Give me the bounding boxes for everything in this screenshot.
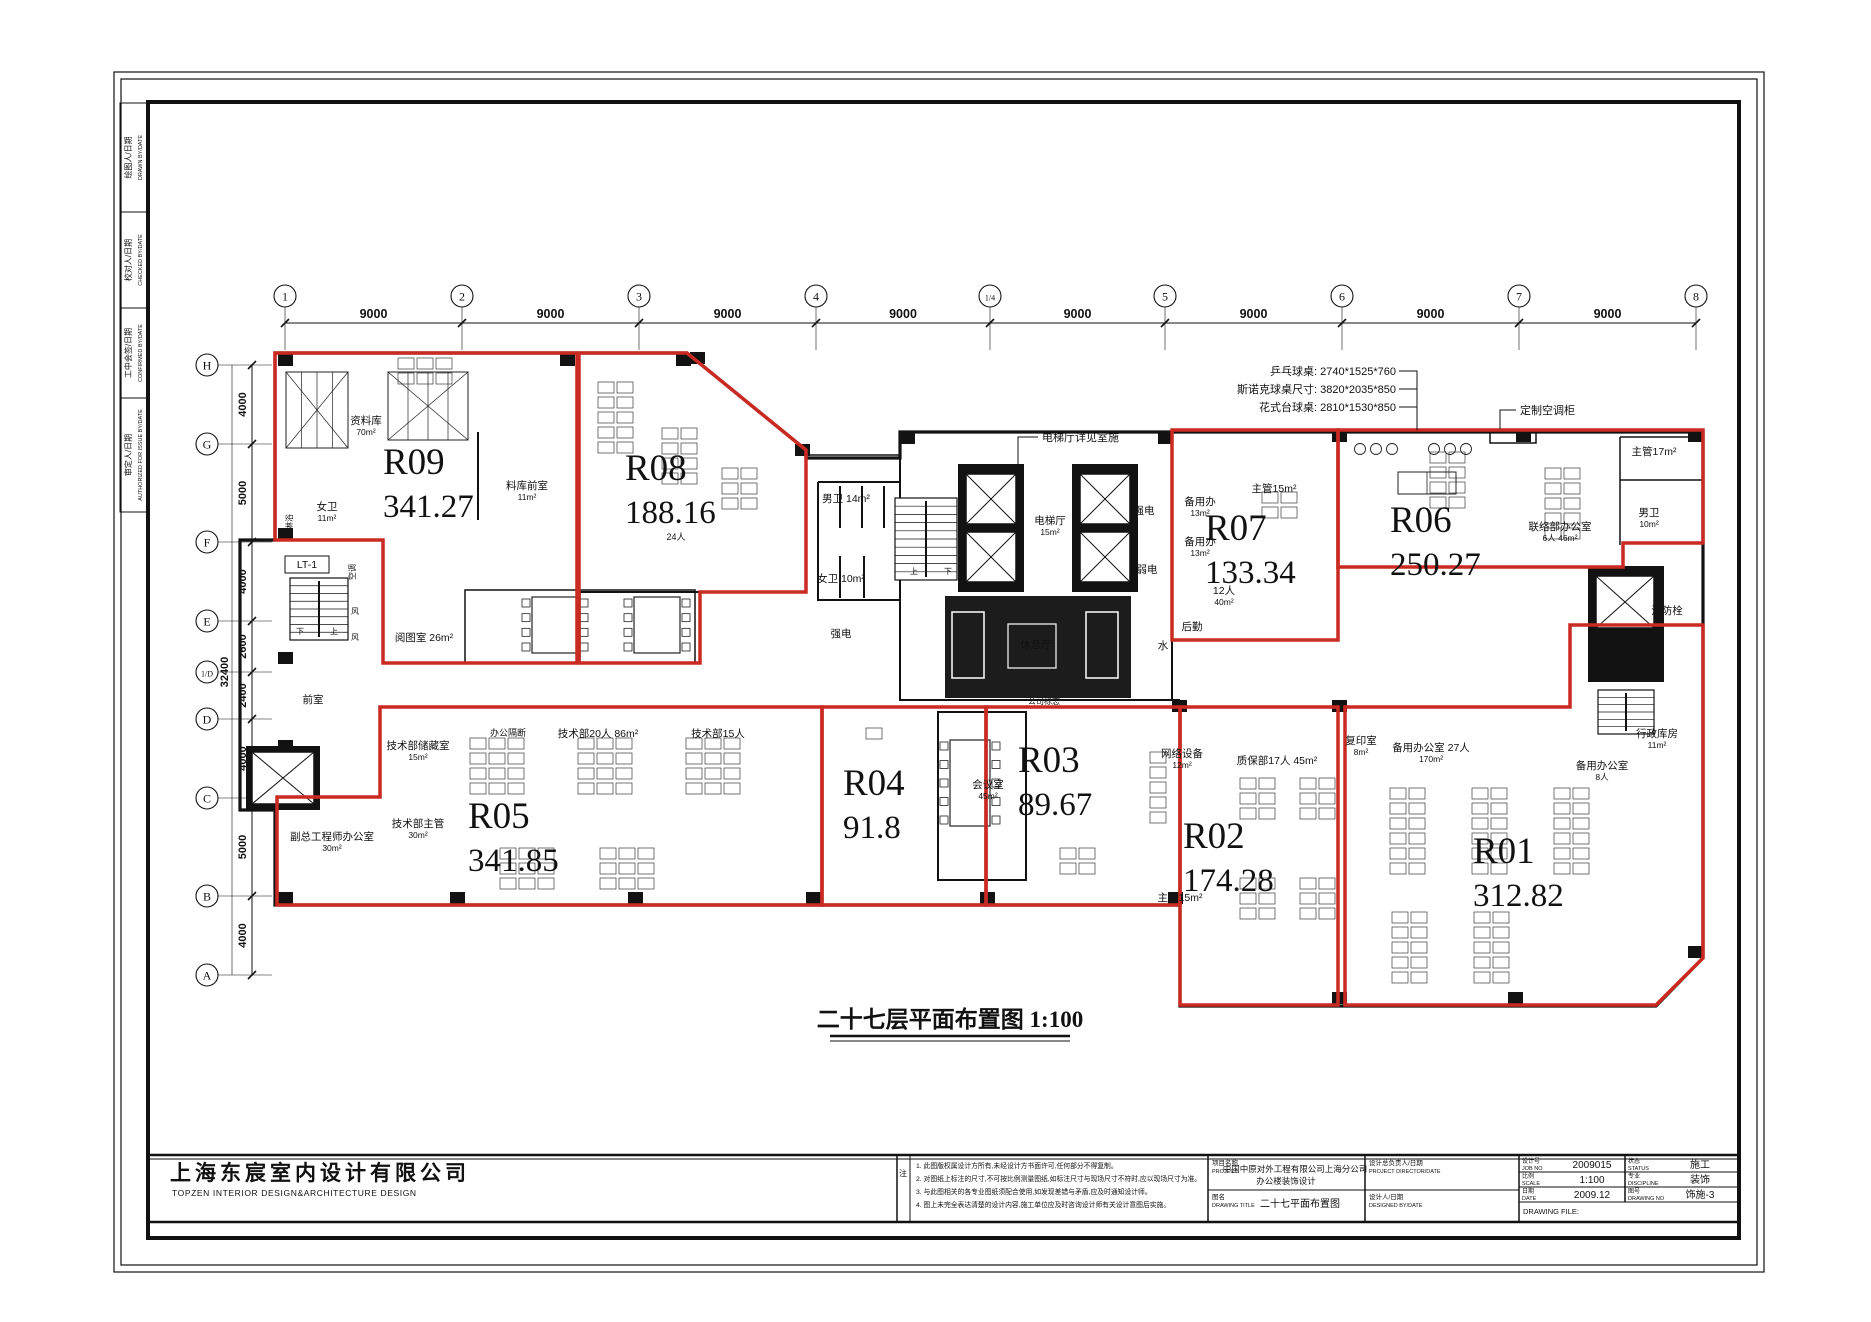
desk [436,373,452,384]
room-area: 30m² [322,843,342,853]
column [1688,430,1703,442]
grid-row-label: F [204,536,211,550]
grid-col-span: 9000 [1240,307,1268,321]
room-label: 料库前室 [506,479,548,492]
desk [470,768,486,779]
desk [1300,793,1316,804]
room-label: 强电 [1134,504,1156,517]
room-area: 11m² [518,492,537,502]
desk [1573,818,1589,829]
desk [638,848,654,859]
desk [619,863,635,874]
floorplan-canvas: 绘图人/日期DRAWN BY/DATE校对人/日期CHECKED BY/DATE… [0,0,1871,1322]
note-line: 4. 图上未完全表达清楚的设计内容,施工单位应及时咨询设计师有关设计意图后实施。 [916,1200,1170,1209]
column [450,892,465,904]
desk [1472,818,1488,829]
desk [578,783,594,794]
desk [1474,972,1490,983]
grid-col-span: 9000 [714,307,742,321]
desk [1390,848,1406,859]
desk [1493,972,1509,983]
desk [1259,808,1275,819]
column [628,892,643,904]
desk [722,483,738,494]
desk [686,783,702,794]
room-label: 备用办公室 27人 [1392,741,1470,754]
company-name-en: TOPZEN INTERIOR DESIGN&ARCHITECTURE DESI… [172,1188,417,1198]
grid-col-span: 9000 [1064,307,1092,321]
margin-label-cn: 校对人/日期 [123,239,133,281]
desk [598,397,614,408]
room-label: 技术部储藏室 [387,739,450,752]
callout-text: 花式台球桌: 2810*1530*850 [1259,400,1396,414]
desk [417,358,433,369]
desk [741,498,757,509]
desk [1411,942,1427,953]
designer-label: 设计人/日期 [1369,1192,1404,1201]
grid-row-total: 32400 [219,657,231,688]
zone-area-R05: 341.85 [468,843,559,879]
desk [1259,793,1275,804]
furniture-layer [286,358,1589,983]
zone-area-R01: 312.82 [1473,878,1564,914]
date-label-en: DATE [1522,1196,1537,1202]
chair [624,614,632,622]
desk [500,878,516,889]
desk [662,428,678,439]
grid-row-label: E [203,615,210,629]
desk [1300,878,1316,889]
room-label: 风 [351,607,359,616]
desk [598,442,614,453]
lounge-sofa [1086,612,1118,678]
chair [580,628,588,636]
desk [489,753,505,764]
column [278,740,293,752]
grid-col-label: 7 [1516,290,1522,304]
desk [1474,957,1490,968]
stool [1445,444,1456,455]
desk [681,428,697,439]
desk [722,498,738,509]
drawing-title-label-en: DRAWING TITLE [1212,1203,1255,1209]
room-label: 空调 [347,564,357,580]
column [900,432,915,444]
desk [1474,942,1490,953]
desk [398,358,414,369]
room-area: 30m² [408,830,428,840]
zone-id-R05: R05 [468,796,530,837]
note-line: 2. 对图纸上标注的尺寸,不可按比例测量图纸,如标注尺寸与现场尺寸不符时,应以现… [916,1174,1201,1183]
chair [940,742,948,750]
director-label: 设计总负责人/日期 [1369,1158,1423,1167]
room-label: 12人 [1213,585,1236,597]
room-label: 消防栓 [1651,604,1683,617]
desk [1319,793,1335,804]
chair [992,742,1000,750]
desk [597,783,613,794]
desk [617,427,633,438]
room-label: 弱电 [1137,563,1159,576]
chair [624,599,632,607]
designer-label-en: DESIGNED BY/DATE [1369,1203,1423,1209]
room-area: 8人 [1595,772,1609,782]
zone-id-R04: R04 [843,763,905,804]
director-label-en: PROJECT DIRECTOR/DATE [1369,1169,1441,1175]
meeting-table [532,597,578,653]
notes-mark: 注 [899,1168,907,1178]
desk [1411,912,1427,923]
desk [578,753,594,764]
chair [992,761,1000,769]
room-label: 后勤 [1182,620,1203,633]
lounge-sofa [952,612,984,678]
discipline-label: 专业 [1628,1172,1640,1180]
desk [1554,863,1570,874]
room-label: 技术部主管 [392,817,445,830]
desk [1150,797,1166,808]
stool [1371,444,1382,455]
stool [1355,444,1366,455]
title-block: 上海东宸室内设计有限公司 TOPZEN INTERIOR DESIGN&ARCH… [148,1155,1739,1222]
chair [522,628,530,636]
jobno-value: 2009015 [1573,1160,1612,1171]
desk [1449,482,1465,493]
desk [1079,863,1095,874]
drawing-title-value: 二十七平面布置图 [1260,1197,1340,1210]
desk [1240,778,1256,789]
desk [722,468,738,479]
desk [1564,483,1580,494]
desk [1259,778,1275,789]
chair [940,761,948,769]
desk [1300,808,1316,819]
desk [617,412,633,423]
desk [1409,863,1425,874]
callout-text: 斯诺克球桌尺寸: 3820*2035*850 [1237,382,1396,396]
desk [1390,788,1406,799]
desk [1390,833,1406,844]
grid-row-label: B [203,890,211,904]
room-area: 15m² [1040,527,1060,537]
desk [1409,803,1425,814]
grid-row-span: 5000 [237,835,249,859]
grid-col-label: 8 [1693,290,1699,304]
grid-col-label: 1 [282,290,288,304]
scale-label-en: SCALE [1522,1181,1540,1187]
desk [1150,782,1166,793]
chair [940,798,948,806]
desk [1060,848,1076,859]
desk [1472,803,1488,814]
room-area: 40m² [1214,597,1234,607]
column [1688,946,1703,958]
desk [1493,942,1509,953]
callout-text: 乒乓球桌: 2740*1525*760 [1270,364,1396,378]
desk [1573,863,1589,874]
room-label: 下 [944,567,952,576]
grid-row-label: A [203,969,212,983]
desk [489,738,505,749]
desk [619,848,635,859]
desk [866,728,882,739]
room-label: 前室 [303,693,324,706]
room-label: 强电 [831,627,852,640]
zone-id-R01: R01 [1473,831,1535,872]
callout-text: 定制空调柜 [1520,403,1575,417]
column [806,892,821,904]
status-label-en: STATUS [1628,1166,1649,1172]
grid-row-label: 1/D [201,670,213,679]
note-line: 1. 此图版权属设计方所有,未经设计方书面许可,任何部分不得复制。 [916,1161,1118,1170]
desk [1545,468,1561,479]
drawingno-value: 饰施-3 [1686,1188,1715,1201]
desk [470,783,486,794]
zone-area-R04: 91.8 [843,810,901,846]
desk [1319,808,1335,819]
room-label: 副总工程师办公室 [290,830,374,843]
room-area: 170m² [1419,754,1443,764]
desk [1240,793,1256,804]
room-label: 女卫 10m² [817,572,865,585]
column [560,354,575,366]
desk [1430,482,1446,493]
desk [489,768,505,779]
drawing-sheet: 绘图人/日期DRAWN BY/DATE校对人/日期CHECKED BY/DATE… [0,0,1871,1322]
desk [1491,788,1507,799]
grid-row-span: 4000 [237,923,249,947]
grid-col-label: 3 [636,290,642,304]
zone-outline-R04 [822,707,986,905]
room-label: 备用办 [1184,495,1216,508]
room-label: 网络设备 [1161,747,1203,760]
zone-id-R03: R03 [1018,740,1080,781]
room-area: 11m² [318,513,337,523]
stool [1461,444,1472,455]
column [278,892,293,904]
zone-area-R03: 89.67 [1018,787,1092,823]
callout-leader [1500,410,1516,429]
room-area: 45m² [978,791,998,801]
desk [1554,788,1570,799]
desk [1554,818,1570,829]
desk [598,427,614,438]
chair [624,643,632,651]
desk [598,382,614,393]
note-line: 3. 与此图相关的各专业图纸须配合使用,如发现差错与矛盾,应及时通知设计师。 [916,1187,1152,1196]
desk [470,753,486,764]
desk [1554,848,1570,859]
desk [470,738,486,749]
desk [1493,957,1509,968]
desk [1474,927,1490,938]
desk [1545,498,1561,509]
margin-label-en: AUTHORIZED FOR ISSUE BY/DATE [138,409,144,501]
desk [508,783,524,794]
room-label: 复印室 [1345,734,1377,747]
chair [682,599,690,607]
desk [1392,957,1408,968]
desk [1281,507,1297,518]
desk [508,738,524,749]
grid-col-label: 6 [1339,290,1345,304]
room-area: 6人 46m² [1543,533,1578,543]
desk [705,753,721,764]
grid-col-label: 4 [813,290,819,304]
drawingno-label-en: DRAWING NO [1628,1196,1665,1202]
company-name: 上海东宸室内设计有限公司 [170,1161,470,1185]
status-label: 状态 [1628,1157,1640,1165]
discipline-value: 装饰 [1690,1173,1710,1186]
zone-area-R08: 188.16 [625,495,716,531]
zone-id-R02: R02 [1183,816,1245,857]
grid-col-span: 9000 [889,307,917,321]
date-label: 日期 [1522,1187,1534,1195]
desk [1300,778,1316,789]
desk [724,768,740,779]
room-label: LT-1 [297,559,317,571]
chair [580,614,588,622]
desk [705,768,721,779]
desk [724,783,740,794]
room-label: 24人 [666,532,685,542]
desk [1392,912,1408,923]
desk [638,863,654,874]
room-label: 风 [351,633,359,642]
desk [597,753,613,764]
desk [1079,848,1095,859]
desk [1150,767,1166,778]
room-area: 11m² [1648,740,1667,750]
room-area: 70m² [356,427,376,437]
desk [1493,927,1509,938]
desk [638,878,654,889]
desk [741,483,757,494]
room-label: 质保部17人 45m² [1237,754,1318,767]
desk [1300,893,1316,904]
drawingno-label: 图号 [1628,1188,1640,1195]
chair [682,643,690,651]
zone-id-R09: R09 [383,442,445,483]
desk [519,878,535,889]
desk [1554,803,1570,814]
chair [522,599,530,607]
desk [616,783,632,794]
chair [580,643,588,651]
room-label: 资料库 [350,414,382,427]
desk [1430,452,1446,463]
column [278,652,293,664]
margin-label-cn: 审定人/日期 [123,434,133,476]
chair [992,816,1000,824]
grid-row-label: H [203,359,212,373]
desk [1409,833,1425,844]
zone-area-R09: 341.27 [383,489,474,525]
chair [522,643,530,651]
room-label: 联络部办公室 [1529,520,1592,533]
grid-row-label: D [203,713,212,727]
desk [1390,863,1406,874]
desk [600,863,616,874]
desk [1573,848,1589,859]
room-label: 男卫 14m² [822,493,870,505]
drawing-title-label: 图名 [1212,1192,1225,1201]
desk [489,783,505,794]
room-label: 女卫 [317,500,338,513]
desk [686,753,702,764]
desk [436,358,452,369]
room-label: 备用办 [1184,535,1216,548]
desk [1390,818,1406,829]
desk [600,848,616,859]
grid-col-label: 5 [1162,290,1168,304]
jobno-label: 设计号 [1522,1157,1540,1165]
desk [1392,927,1408,938]
chair [580,599,588,607]
grid-col-label: 2 [459,290,465,304]
desk [1573,803,1589,814]
chair [682,614,690,622]
chair [940,779,948,787]
margin-label-en: DRAWN BY/DATE [138,135,144,181]
grid-col-span: 9000 [360,307,388,321]
desk [578,768,594,779]
room-area: 13m² [1190,548,1210,558]
callout-leader [1399,371,1417,430]
desk [597,768,613,779]
desk [1554,833,1570,844]
grid-col-span: 9000 [537,307,565,321]
grid-row-span: 4000 [237,392,249,416]
desk [1060,863,1076,874]
desk [1564,468,1580,479]
desk [600,878,616,889]
discipline-label-en: DISCIPLINE [1628,1181,1659,1187]
room-label: 电梯厅 [1034,514,1066,527]
date-value: 2009.12 [1574,1190,1611,1201]
grid-row-label: G [203,438,212,452]
desk [1411,927,1427,938]
project-value: 中国中原对外工程有限公司上海分公司 [1223,1164,1368,1174]
desk [617,397,633,408]
room-label: 公司标志 [1028,696,1060,706]
status-value: 施工 [1690,1158,1710,1171]
sheet-borders [114,72,1764,1272]
project-value-2: 办公楼装饰设计 [1256,1176,1316,1186]
desk [1319,878,1335,889]
desk [1300,908,1316,919]
scale-value: 1:100 [1579,1175,1604,1186]
room-label: 阅图室 26m² [395,631,454,644]
stool [1429,444,1440,455]
callout-text: 电梯厅详见室施 [1042,430,1119,444]
desk [1409,788,1425,799]
desk [417,373,433,384]
grid-row-label: C [203,792,211,806]
desk [1573,788,1589,799]
desk [1491,818,1507,829]
desk [619,878,635,889]
room-area: 10m² [1639,519,1659,529]
desk [508,768,524,779]
desk [1240,908,1256,919]
desk [1150,812,1166,823]
desk [724,753,740,764]
room-label: 休息厅 [1020,638,1052,651]
margin-strip: 绘图人/日期DRAWN BY/DATE校对人/日期CHECKED BY/DATE… [120,103,148,512]
margin-label-cn: 工中会签/日期 [123,328,133,378]
room-label: 办公隔断 [490,727,526,738]
